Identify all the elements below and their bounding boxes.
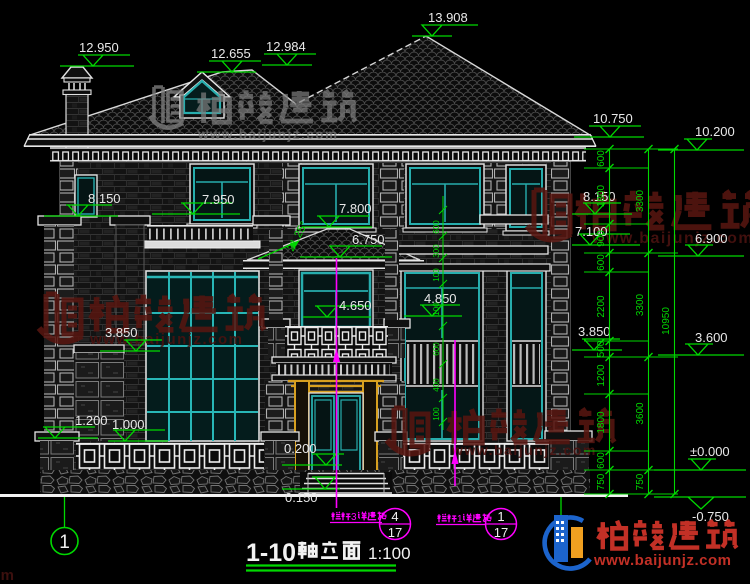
svg-text:3: 3	[351, 512, 357, 523]
svg-text:1-10: 1-10	[246, 539, 296, 567]
svg-text:12.655: 12.655	[211, 46, 251, 61]
svg-text:1: 1	[497, 509, 504, 524]
svg-text:17: 17	[494, 525, 508, 540]
svg-text:7.800: 7.800	[339, 201, 372, 216]
svg-text:10.200: 10.200	[695, 124, 735, 139]
svg-text:3.850: 3.850	[578, 324, 611, 339]
svg-text:600: 600	[596, 150, 607, 167]
svg-text:500: 500	[596, 340, 607, 357]
svg-text:3600: 3600	[635, 402, 646, 425]
svg-text:600: 600	[432, 220, 441, 234]
svg-text:1200: 1200	[596, 364, 607, 387]
svg-text:4: 4	[391, 509, 398, 524]
svg-text:1:100: 1:100	[368, 544, 411, 563]
svg-text:1800: 1800	[596, 411, 607, 434]
svg-text:12.984: 12.984	[266, 39, 306, 54]
svg-text:10950: 10950	[661, 307, 672, 335]
svg-text:3.850: 3.850	[105, 325, 138, 340]
svg-text:4.650: 4.650	[339, 298, 372, 313]
svg-text:600: 600	[596, 254, 607, 271]
svg-text:1.000: 1.000	[112, 417, 145, 432]
svg-text:400: 400	[432, 378, 441, 392]
svg-text:600: 600	[432, 342, 441, 356]
svg-text:13.908: 13.908	[428, 10, 468, 25]
svg-text:0.150: 0.150	[285, 490, 318, 505]
svg-text:3.600: 3.600	[695, 330, 728, 345]
svg-text:750: 750	[596, 473, 607, 490]
svg-text:6.900: 6.900	[695, 231, 728, 246]
svg-text:900: 900	[596, 230, 607, 247]
svg-text:17: 17	[388, 525, 402, 540]
svg-text:1800: 1800	[596, 184, 607, 207]
svg-text:±0.000: ±0.000	[690, 444, 730, 459]
svg-text:12.950: 12.950	[79, 40, 119, 55]
svg-text:1: 1	[59, 532, 70, 553]
svg-text:www.baijunjz.com: www.baijunjz.com	[451, 442, 597, 458]
svg-text:300: 300	[432, 244, 441, 258]
svg-text:1.200: 1.200	[75, 413, 108, 428]
svg-text:7.950: 7.950	[202, 192, 235, 207]
svg-text:8.150: 8.150	[88, 191, 121, 206]
svg-text:2200: 2200	[596, 295, 607, 318]
svg-text:10.750: 10.750	[593, 111, 633, 126]
svg-text:www.baijunjz.com: www.baijunjz.com	[197, 127, 339, 142]
svg-text:6.750: 6.750	[352, 232, 385, 247]
svg-text:100: 100	[432, 268, 441, 282]
svg-text:600: 600	[596, 452, 607, 469]
svg-text:om: om	[0, 567, 16, 584]
svg-text:0.200: 0.200	[284, 441, 317, 456]
svg-text:750: 750	[635, 473, 646, 490]
svg-text:3300: 3300	[635, 189, 646, 212]
svg-text:100: 100	[432, 407, 441, 421]
svg-text:www.baijunjz.com: www.baijunjz.com	[593, 552, 731, 569]
svg-text:100: 100	[432, 302, 441, 316]
svg-text:1: 1	[457, 514, 463, 525]
svg-text:3300: 3300	[635, 293, 646, 316]
